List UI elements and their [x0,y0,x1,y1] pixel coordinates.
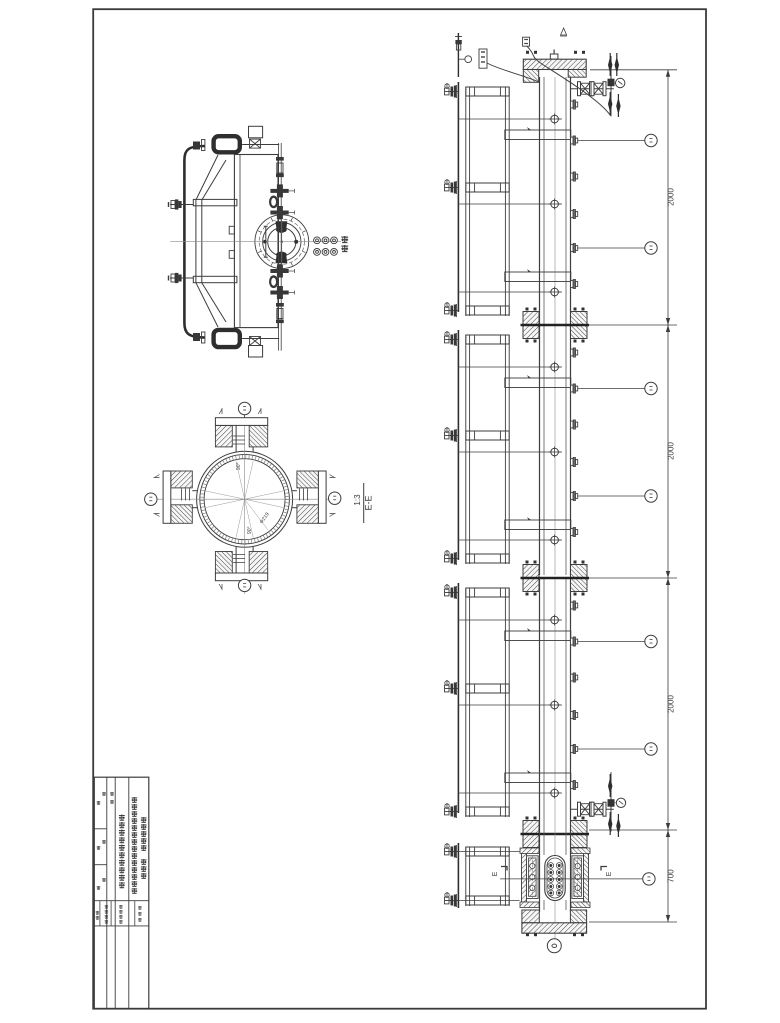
svg-text:90°: 90° [236,462,242,470]
svg-text:90°: 90° [247,526,253,534]
svg-text:700: 700 [667,869,676,883]
svg-text:E: E [606,871,613,876]
svg-text:2000: 2000 [667,188,676,206]
svg-text:2000: 2000 [667,695,676,713]
svg-text:E: E [492,871,499,876]
svg-text:2000: 2000 [667,442,676,460]
svg-text:E-E: E-E [364,495,374,510]
svg-text:1:3: 1:3 [353,494,362,506]
